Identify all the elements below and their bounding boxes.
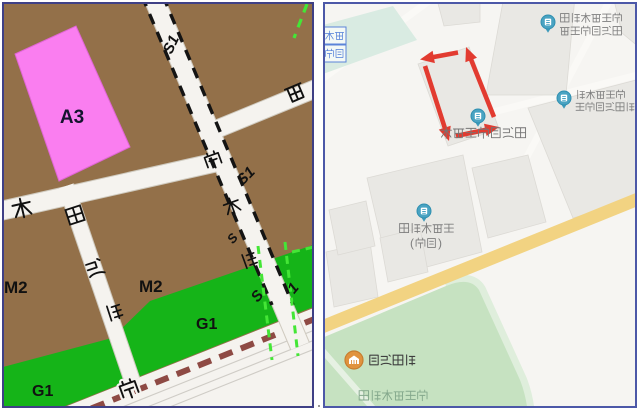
svg-text:G1: G1 [196,316,217,333]
svg-text:M2: M2 [4,278,28,297]
svg-text:): ) [438,236,442,250]
svg-text:A3: A3 [60,107,84,128]
svg-text:(: ( [410,236,414,250]
svg-text:G1: G1 [32,383,53,400]
svg-text:M2: M2 [139,277,163,296]
